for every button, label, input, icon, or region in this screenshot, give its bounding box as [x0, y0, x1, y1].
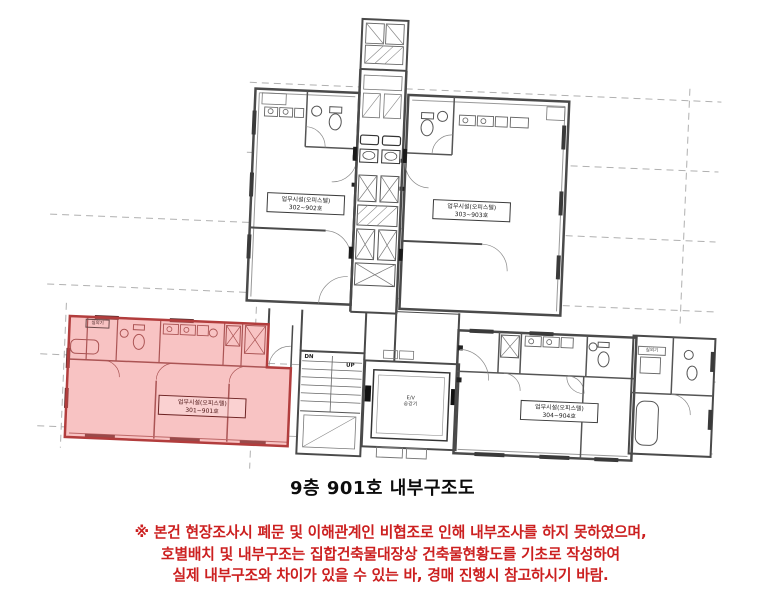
notice-line-2: 호별배치 및 내부구조는 집합건축물대장상 건축물현황도를 기초로 작성하여	[0, 544, 781, 566]
unit-label-upper-left: 업무시설(오피스텔) 302~902호	[266, 192, 345, 215]
unit-label-901: 업무시설(오피스텔) 301~901호	[158, 395, 247, 419]
stair-down-label: DN	[304, 354, 313, 360]
unit-label-upper-right: 업무시설(오피스텔) 303~903호	[432, 199, 511, 222]
stair-up-label: UP	[346, 363, 355, 369]
unit-label-lower-right: 업무시설(오피스텔) 304~904호	[520, 400, 599, 423]
floor-plan: 업무시설(오피스텔) 302~902호 업무시설(오피스텔) 303~903호 …	[33, 2, 732, 500]
outdoor-unit-room-label: 실외기	[85, 319, 109, 329]
floor-plan-drawing	[33, 2, 732, 500]
unit-901-highlight	[65, 316, 293, 446]
outdoor-unit-room-label: 실외기	[638, 346, 666, 356]
notice-line-3: 실제 내부구조와 차이가 있을 수 있는 바, 경매 진행시 참고하시기 바람.	[0, 565, 781, 587]
auction-notice: ※ 본건 현장조사시 폐문 및 이해관계인 비협조로 인해 내부조사를 하지 못…	[0, 522, 781, 587]
auction-floor-plan-page: 업무시설(오피스텔) 302~902호 업무시설(오피스텔) 303~903호 …	[0, 0, 781, 600]
notice-line-1: ※ 본건 현장조사시 폐문 및 이해관계인 비협조로 인해 내부조사를 하지 못…	[0, 522, 781, 544]
page-title: 9층 901호 내부구조도	[0, 474, 773, 500]
